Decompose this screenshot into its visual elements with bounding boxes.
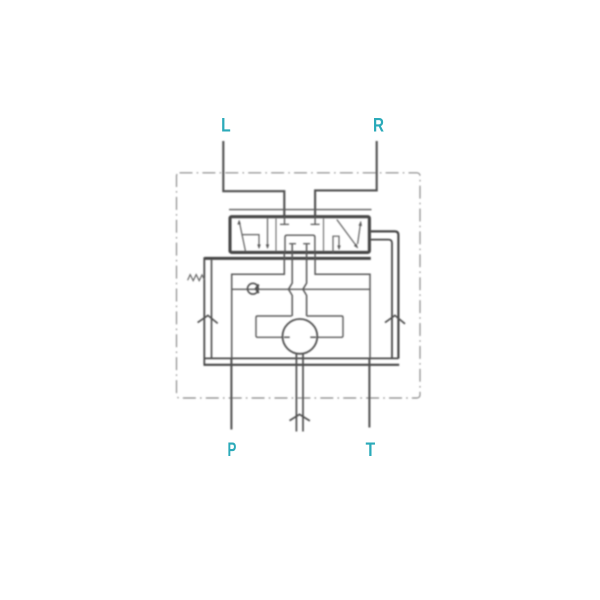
svg-text:P: P bbox=[227, 439, 236, 461]
svg-text:T: T bbox=[366, 438, 376, 460]
svg-text:L: L bbox=[221, 114, 231, 136]
svg-text:R: R bbox=[373, 114, 384, 136]
